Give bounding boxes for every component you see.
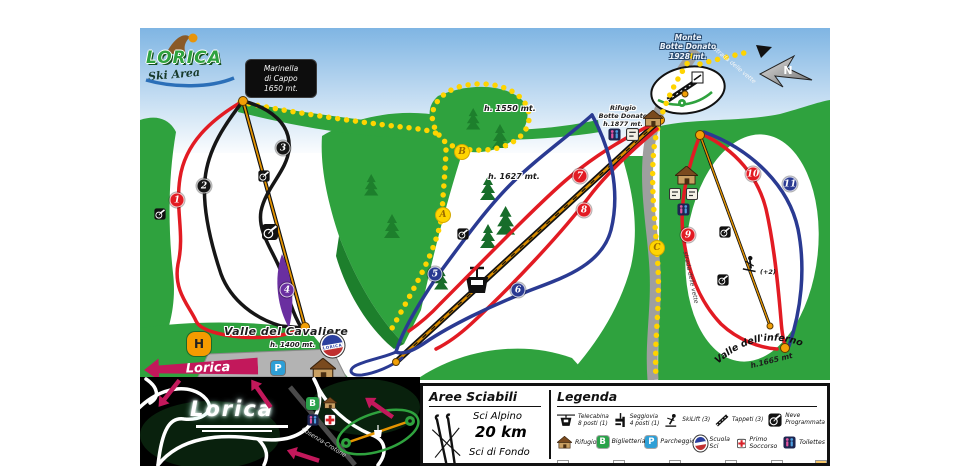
skier-count-note: (+2) bbox=[760, 268, 776, 276]
ticket-office-icon: B bbox=[306, 397, 319, 410]
toilets-icon bbox=[608, 128, 621, 141]
legend-item-neve: NeveProgrammata bbox=[768, 413, 825, 427]
hut-icon bbox=[323, 397, 337, 409]
snow-cannon-icon bbox=[719, 226, 731, 238]
alpine-ski-label: Sci Alpino bbox=[473, 411, 522, 422]
snow-cannon-icon bbox=[457, 228, 469, 240]
crossed-skis-icon bbox=[429, 413, 469, 465]
valle-cavaliere-elevation: h. 1400 mt. bbox=[270, 341, 315, 349]
legend-item-toilettes: Toilettes bbox=[783, 436, 825, 449]
skilift-icon bbox=[664, 413, 679, 428]
helipad-icon: H bbox=[187, 332, 211, 356]
parking-icon: P bbox=[645, 436, 657, 448]
legend-clipped-item bbox=[613, 460, 625, 466]
legend-item-skilift: SkiLift (3) bbox=[664, 413, 710, 428]
run-3-badge: 3 bbox=[276, 141, 291, 156]
legend-divider bbox=[549, 390, 551, 459]
legend-clipped-item bbox=[815, 460, 827, 466]
run-8-badge: 8 bbox=[577, 203, 592, 218]
ski-area-stats-section: Aree Sciabili Sci Alpino 20 km Sci di Fo… bbox=[429, 389, 545, 407]
town-inset-map: Lorica Cosenza-Crotone B bbox=[140, 377, 420, 466]
legend-section: Legenda Telecabina8 posti (1) Seggiovia4… bbox=[557, 389, 825, 450]
inset-town-label: Lorica bbox=[190, 397, 274, 421]
svg-text:N: N bbox=[783, 64, 792, 77]
legend-item-primo-soccorso: Primo Soccorso bbox=[737, 436, 783, 450]
legend-item-seggiovia: Seggiovia4 posti (1) bbox=[614, 413, 660, 428]
compass-north-icon: N bbox=[758, 50, 816, 96]
inset-art bbox=[140, 377, 420, 466]
ticket-office-icon: B bbox=[597, 436, 609, 448]
alpine-ski-km: 20 km bbox=[475, 423, 527, 441]
chairlift-icon bbox=[614, 413, 627, 428]
legend-clipped-item bbox=[771, 460, 783, 466]
trail-marker-a: A bbox=[435, 207, 451, 223]
mountain-hut-icon bbox=[675, 166, 698, 185]
hut-icon bbox=[557, 436, 572, 449]
legend-item-parcheggio: P Parcheggio bbox=[645, 436, 695, 448]
toilets-icon bbox=[783, 436, 796, 449]
run-10-badge: 10 bbox=[746, 167, 761, 182]
legend-item-biglietteria: B Biglietteria bbox=[597, 436, 646, 448]
ski-school-badge-text: LORICA bbox=[322, 342, 343, 352]
run-1-badge: 1 bbox=[170, 193, 185, 208]
logo-title: LORICA bbox=[146, 48, 222, 68]
snow-cannon-icon bbox=[258, 170, 270, 182]
inset-underline bbox=[196, 425, 288, 428]
trail-marker-b: B bbox=[454, 144, 470, 160]
amenity-icon bbox=[669, 188, 681, 200]
elevation-1627-label: h. 1627 mt. bbox=[488, 172, 540, 181]
first-aid-icon bbox=[324, 414, 336, 426]
ski-school-badge bbox=[695, 437, 706, 450]
aree-sciabili-title: Aree Sciabili bbox=[429, 389, 541, 407]
mountain-map: Valle dell'inferno LORICA Ski Area Marin… bbox=[140, 28, 830, 380]
run-6-badge: 6 bbox=[511, 283, 526, 298]
legend-row-lifts: Telecabina8 posti (1) Seggiovia4 posti (… bbox=[557, 413, 825, 428]
inset-underline bbox=[202, 430, 272, 432]
legend-item-tappeti: Tappeti (3) bbox=[715, 413, 763, 427]
legend-item-scuola-sci: Scuola Sci bbox=[695, 436, 737, 450]
legend-row-services: Rifugio B Biglietteria P Parcheggio Scuo… bbox=[557, 436, 825, 450]
ski-school-badge: LORICA bbox=[322, 335, 343, 356]
marinella-line2: di Cappo bbox=[248, 74, 314, 84]
run-11-badge: 11 bbox=[783, 177, 798, 192]
snow-cannon-icon bbox=[154, 208, 166, 220]
run-5-badge: 5 bbox=[428, 267, 443, 282]
snow-cannon-icon bbox=[717, 274, 729, 286]
run-2-badge: 2 bbox=[197, 179, 212, 194]
lorica-ski-area-logo: LORICA Ski Area bbox=[144, 32, 240, 90]
marinella-elevation: 1650 mt. bbox=[248, 84, 314, 94]
legend-item-telecabina: Telecabina8 posti (1) bbox=[557, 413, 609, 428]
marinella-line1: Marinella bbox=[248, 64, 314, 74]
legend-clipped-item bbox=[669, 460, 681, 466]
marinella-peak-sign: Marinella di Cappo 1650 mt. bbox=[246, 60, 316, 97]
logo-swoosh bbox=[144, 76, 236, 88]
first-aid-icon bbox=[737, 437, 746, 450]
legend-item-rifugio: Rifugio bbox=[557, 436, 597, 449]
toilets-icon bbox=[677, 203, 690, 216]
trail-marker-c: C bbox=[649, 240, 665, 256]
run-7-badge: 7 bbox=[573, 169, 588, 184]
amenity-icon bbox=[626, 128, 639, 141]
snow-cannon-icon bbox=[262, 224, 279, 241]
gondola-icon bbox=[557, 413, 575, 428]
legend-clipped-item bbox=[725, 460, 737, 466]
parking-icon: P bbox=[271, 361, 285, 375]
toilets-icon bbox=[307, 414, 319, 426]
lorica-piste-map-poster: Valle dell'inferno LORICA Ski Area Marin… bbox=[0, 0, 974, 466]
legend-title: Legenda bbox=[557, 389, 817, 407]
carpet-lift-icon bbox=[715, 413, 729, 427]
nordic-ski-label: Sci di Fondo bbox=[469, 447, 530, 458]
run-9-badge: 9 bbox=[681, 228, 696, 243]
legend-clipped-item bbox=[557, 460, 569, 466]
legend-panel: Aree Sciabili Sci Alpino 20 km Sci di Fo… bbox=[420, 383, 830, 466]
run-4-badge: 4 bbox=[280, 283, 295, 298]
snow-cannon-icon bbox=[768, 413, 782, 427]
rifugio-hut-icon bbox=[643, 110, 663, 127]
amenity-icon bbox=[686, 188, 698, 200]
elevation-1550-label: h. 1550 mt. bbox=[484, 104, 536, 113]
